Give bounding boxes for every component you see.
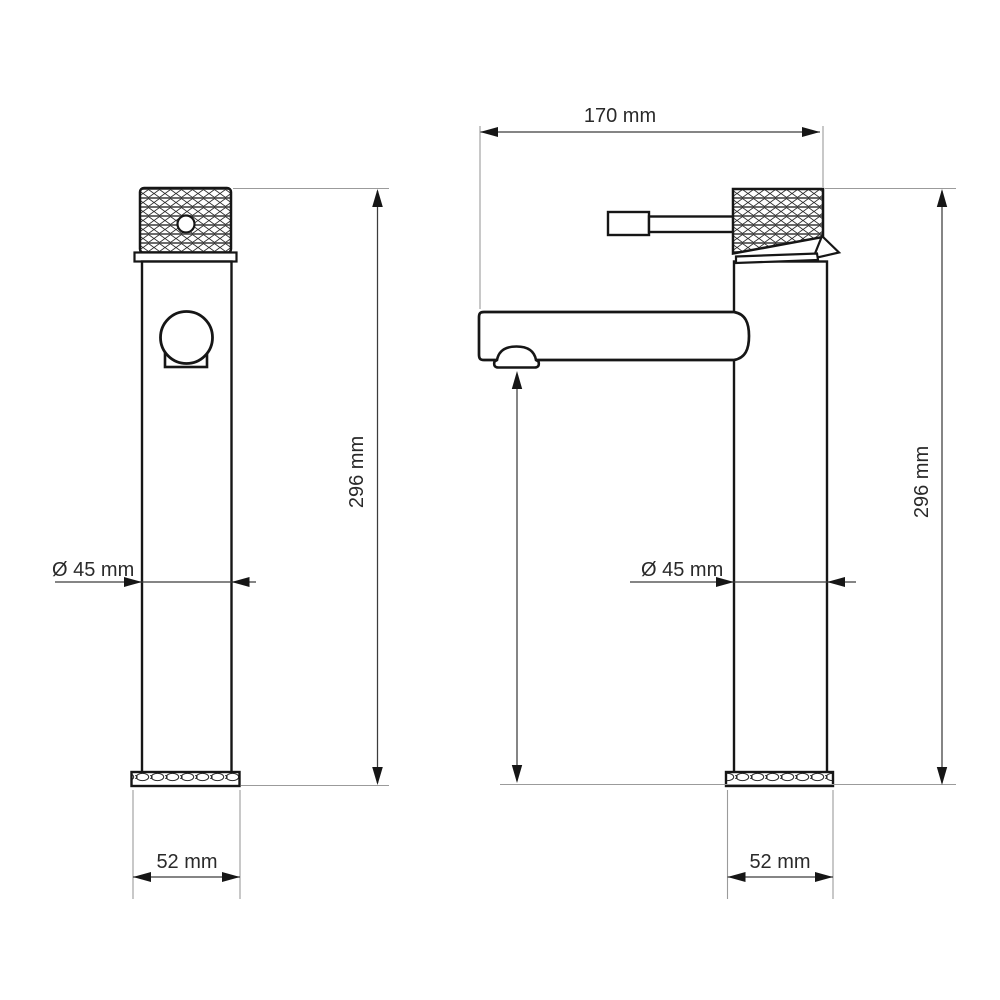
handle-lever-rod [649,217,734,233]
front-height-dimension: 296 mm [233,189,389,786]
arrow-up-icon [512,371,522,389]
arrow-down-icon [372,767,383,785]
arrow-right-icon [716,577,734,587]
spout-outlet-front [161,312,213,364]
handle-screw-hole [178,216,195,233]
faucet-technical-drawing: 296 mm Ø 45 mm 52 mm 170 mm [0,0,1000,1000]
side-height-label: 296 mm [911,446,933,518]
side-base-width-label: 52 mm [749,851,810,873]
arrow-up-icon [372,189,383,207]
spout-height-indicator [512,371,522,783]
arrow-down-icon [937,767,947,785]
base-plate-side [726,772,833,786]
arrow-down-icon [512,765,522,783]
handle-lever-knob [608,212,649,235]
faucet-front-outline [132,188,240,786]
technical-drawing-page: 296 mm Ø 45 mm 52 mm 170 mm [0,0,1000,1000]
side-view: 170 mm [479,105,956,899]
arrow-left-icon [480,127,498,137]
side-base-width-dimension: 52 mm [728,790,834,899]
arrow-right-icon [222,872,240,882]
arrow-left-icon [232,577,250,587]
collar-ring [135,253,237,262]
arrow-up-icon [937,189,947,207]
front-diameter-label: Ø 45 mm [52,559,134,581]
side-spout-reach-label: 170 mm [584,105,656,127]
side-diameter-label: Ø 45 mm [641,559,723,581]
arrow-left-icon [133,872,151,882]
arrow-left-icon [827,577,845,587]
base-plate-front [132,772,240,786]
side-height-dimension: 296 mm [500,189,956,786]
arrow-left-icon [728,872,746,882]
knurled-handle-side [733,189,823,254]
front-height-label: 296 mm [346,436,368,508]
front-base-width-label: 52 mm [156,851,217,873]
arrow-right-icon [815,872,833,882]
faucet-side-outline [479,189,839,786]
arrow-right-icon [802,127,820,137]
front-base-width-dimension: 52 mm [133,790,240,899]
front-view: 296 mm Ø 45 mm 52 mm [52,188,389,899]
